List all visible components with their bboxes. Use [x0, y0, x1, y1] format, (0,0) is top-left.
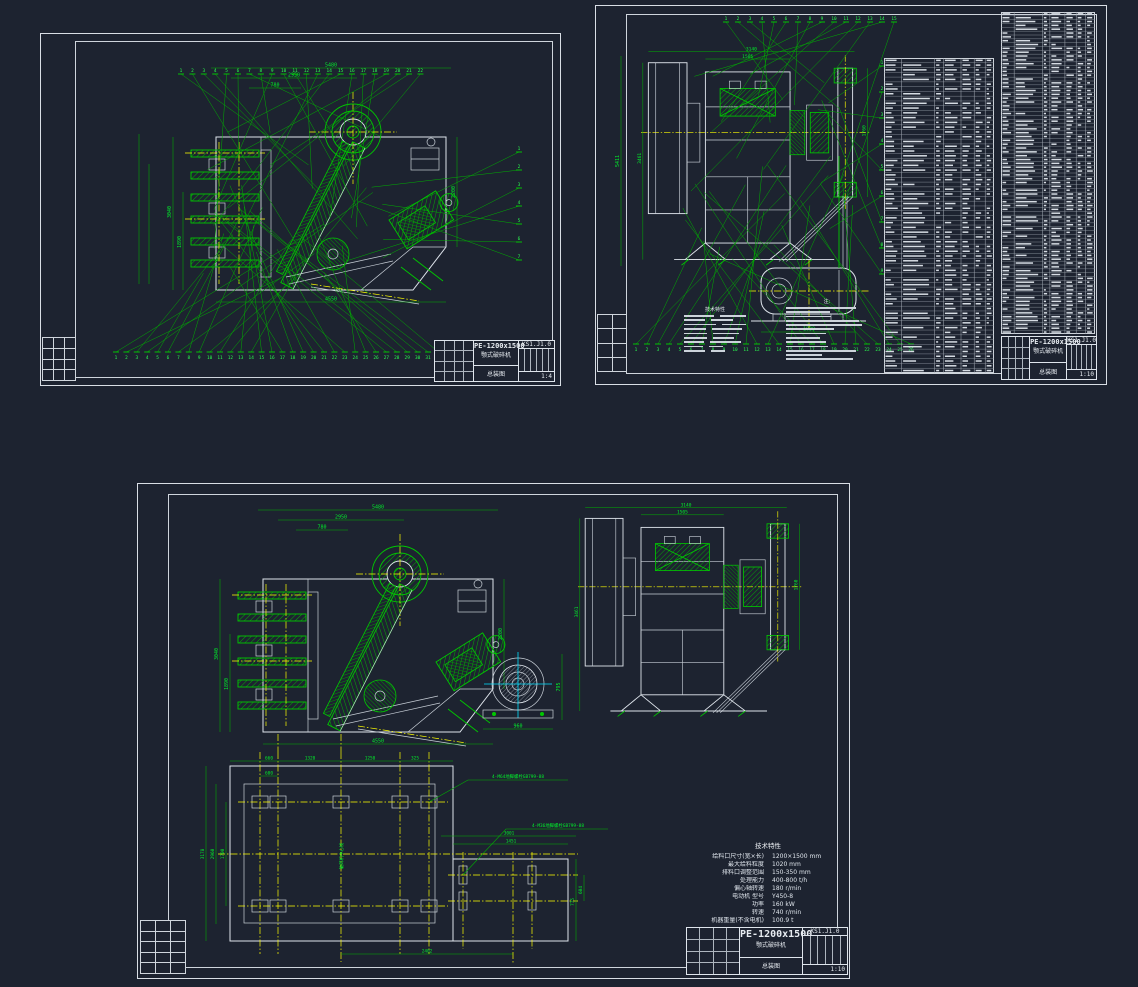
tech-notes-block: 注:: [786, 298, 868, 363]
svg-text:19: 19: [384, 68, 390, 74]
svg-text:20: 20: [311, 355, 317, 361]
title-product: 颚式破碎机: [1030, 346, 1066, 363]
svg-text:7: 7: [797, 16, 800, 22]
title-model: PE-1200x1500: [474, 341, 518, 350]
svg-text:18: 18: [372, 68, 378, 74]
svg-text:8: 8: [187, 355, 190, 361]
svg-text:13: 13: [238, 355, 244, 361]
svg-text:3: 3: [749, 16, 752, 22]
svg-text:12: 12: [228, 355, 234, 361]
dim-label: 604: [578, 886, 584, 894]
revision-table: [140, 920, 186, 974]
foundation-centerline-label: 破碎机中心线: [338, 842, 345, 869]
svg-text:8: 8: [259, 68, 262, 74]
tech-spec-row: 排料口调整范围150-350 mm: [698, 869, 838, 877]
svg-text:10: 10: [831, 16, 837, 22]
svg-text:25: 25: [363, 355, 369, 361]
svg-text:13: 13: [315, 68, 321, 74]
svg-text:29: 29: [405, 355, 411, 361]
title-doc-type: 总装图: [1030, 363, 1066, 379]
svg-text:5: 5: [225, 68, 228, 74]
svg-text:5: 5: [679, 347, 682, 353]
dim-label: 1451: [506, 839, 517, 845]
tech-spec-row: 电动机 型号Y450-8: [698, 893, 838, 901]
svg-text:14: 14: [327, 68, 333, 74]
tech-spec-row: 偏心轴转速180 r/min: [698, 885, 838, 893]
dim-label: 3001: [504, 831, 515, 837]
parts-list-table-right: [1001, 12, 1095, 334]
tech-spec-row: 处理能力400-800 t/h: [698, 877, 838, 885]
svg-text:14: 14: [776, 347, 782, 353]
dim-label: 2402: [422, 949, 433, 955]
svg-text:10: 10: [207, 355, 213, 361]
svg-text:6: 6: [518, 236, 521, 242]
anchor-bolt-callout: 4-M36地脚螺栓GB799-88: [532, 822, 584, 829]
svg-text:21: 21: [321, 355, 327, 361]
tech-notes-header: 注:: [786, 298, 868, 305]
tech-spec-row: 最大给料粒度1020 mm: [698, 861, 838, 869]
title-doc-type: 总装图: [474, 366, 518, 381]
drawing-scale: 1:10: [1067, 370, 1096, 379]
title-model: PE-1200x1500: [1030, 337, 1066, 346]
svg-text:6: 6: [237, 68, 240, 74]
svg-text:1: 1: [180, 68, 183, 74]
drawing-scale: 1:4: [519, 372, 554, 381]
tech-spec-row: 机器重量(不含电机)100.9 t: [698, 917, 838, 925]
sheet-b-front-assembly: 1030 123456789101112131415 1234567891011…: [595, 5, 1107, 385]
svg-text:8: 8: [809, 16, 812, 22]
svg-text:18: 18: [290, 355, 296, 361]
svg-text:2: 2: [125, 355, 128, 361]
tech-spec-header: 技术特性: [698, 842, 838, 850]
svg-text:22: 22: [332, 355, 338, 361]
svg-text:4: 4: [146, 355, 149, 361]
svg-text:15: 15: [891, 16, 897, 22]
dim-label: 1700: [220, 848, 226, 859]
tech-spec-block: 技术特性 给料口尺寸(宽×长)1200×1500 mm最大给料粒度1020 mm…: [698, 842, 838, 925]
svg-text:3: 3: [202, 68, 205, 74]
title-product: 颚式破碎机: [740, 940, 802, 958]
svg-text:16: 16: [349, 68, 355, 74]
svg-text:23: 23: [342, 355, 348, 361]
revision-table: [42, 337, 76, 381]
drawing-number: KS1.J1.0: [519, 341, 554, 349]
svg-text:11: 11: [843, 16, 849, 22]
svg-text:14: 14: [249, 355, 255, 361]
tech-spec-row: 功率160 kW: [698, 901, 838, 909]
title-doc-type: 总装图: [740, 958, 802, 975]
svg-text:28: 28: [394, 355, 400, 361]
svg-text:4: 4: [518, 200, 521, 206]
svg-text:5411: 5411: [615, 155, 621, 167]
anchor-bolt-callout: 4-M64地脚螺栓GB799-88: [492, 773, 544, 780]
svg-text:1: 1: [725, 16, 728, 22]
svg-text:7: 7: [177, 355, 180, 361]
dim-label: 795: [556, 682, 562, 691]
svg-text:15: 15: [259, 355, 265, 361]
svg-text:15: 15: [338, 68, 344, 74]
svg-text:27: 27: [384, 355, 390, 361]
dim-label: 1250: [365, 756, 376, 762]
svg-text:9: 9: [271, 68, 274, 74]
svg-text:7: 7: [518, 254, 521, 260]
svg-text:10: 10: [281, 68, 287, 74]
svg-text:5: 5: [156, 355, 159, 361]
svg-text:4: 4: [761, 16, 764, 22]
svg-text:17: 17: [280, 355, 286, 361]
svg-text:11: 11: [292, 68, 298, 74]
svg-text:31: 31: [425, 355, 431, 361]
dim-label: 960: [513, 724, 522, 730]
svg-text:12: 12: [304, 68, 310, 74]
part-balloons-bottom: 1234567891011121314151617181920212223242…: [113, 185, 441, 361]
svg-text:1: 1: [115, 355, 118, 361]
svg-text:24: 24: [353, 355, 359, 361]
svg-text:9: 9: [821, 16, 824, 22]
svg-text:4: 4: [668, 347, 671, 353]
title-block-b: PE-1200x1500 颚式破碎机 总装图 KS1.J1.0 1:10: [1001, 336, 1097, 380]
svg-text:3: 3: [518, 182, 521, 188]
svg-text:12: 12: [754, 347, 760, 353]
svg-text:2: 2: [518, 164, 521, 170]
dim-label: 1320: [305, 756, 316, 762]
title-block-c: PE-1200x1500 颚式破碎机 总装图 KS1.J1.0 1:10: [686, 927, 848, 975]
svg-text:30: 30: [415, 355, 421, 361]
svg-text:2: 2: [191, 68, 194, 74]
title-product: 颚式破碎机: [474, 350, 518, 366]
drawing-scale: 1:10: [803, 965, 847, 974]
revision-table: [597, 314, 627, 372]
svg-text:20: 20: [395, 68, 401, 74]
svg-text:19: 19: [301, 355, 307, 361]
svg-text:5: 5: [773, 16, 776, 22]
svg-text:6: 6: [167, 355, 170, 361]
tech-spec-row: 转速740 r/min: [698, 909, 838, 917]
dim-label: 325: [411, 756, 419, 762]
svg-text:9: 9: [198, 355, 201, 361]
svg-text:22: 22: [418, 68, 424, 74]
svg-text:21: 21: [406, 68, 412, 74]
svg-text:3: 3: [657, 347, 660, 353]
title-block-a: PE-1200x1500 颚式破碎机 总装图 KS1.J1.0 1:4: [434, 340, 555, 382]
svg-text:14: 14: [879, 16, 885, 22]
dim-label: 2960: [210, 848, 216, 859]
tech-spec-row: 给料口尺寸(宽×长)1200×1500 mm: [698, 853, 838, 861]
svg-text:2: 2: [646, 347, 649, 353]
dim-label: 660: [265, 756, 273, 762]
sheet-a-side-assembly: 12345678910111213141516171819202122 1234…: [40, 33, 561, 386]
leader-lines-to-bom: 123456789: [818, 60, 885, 274]
dim-label: 600: [265, 771, 273, 777]
dim-label: 775: [570, 898, 576, 906]
svg-text:11: 11: [217, 355, 223, 361]
svg-text:26: 26: [373, 355, 379, 361]
sheet-c-general-assembly: 960 795: [137, 483, 850, 979]
sheet-a-drawing: 12345678910111213141516171819202122 1234…: [41, 34, 560, 385]
svg-text:4: 4: [214, 68, 217, 74]
parts-list-table: [884, 58, 994, 373]
svg-text:5: 5: [518, 218, 521, 224]
foundation-plan: 660 1320 1250 325 600 3178 2960 1700 240…: [200, 734, 608, 964]
svg-text:7: 7: [248, 68, 251, 74]
svg-text:16: 16: [269, 355, 275, 361]
svg-text:2: 2: [737, 16, 740, 22]
svg-text:12: 12: [855, 16, 861, 22]
title-model: PE-1200x1500: [740, 928, 802, 940]
svg-text:1: 1: [518, 146, 521, 152]
part-balloons-bottom: 1234567891011121314151617181920212223242…: [633, 156, 914, 353]
svg-text:13: 13: [765, 347, 771, 353]
svg-text:23: 23: [875, 347, 881, 353]
drawing-number: KS1.J1.0: [1067, 337, 1096, 345]
svg-text:6: 6: [785, 16, 788, 22]
dim-label: 3178: [200, 848, 206, 859]
svg-text:13: 13: [867, 16, 873, 22]
cad-canvas: { "colors": {"background":"#1d2330","gre…: [0, 0, 1138, 987]
tech-spec-header: 技术特性: [684, 306, 746, 313]
svg-text:1: 1: [635, 347, 638, 353]
svg-text:17: 17: [361, 68, 367, 74]
drawing-number: KS1.J1.0: [803, 928, 847, 936]
svg-text:3: 3: [135, 355, 138, 361]
tech-spec-block: 技术特性: [684, 306, 746, 355]
